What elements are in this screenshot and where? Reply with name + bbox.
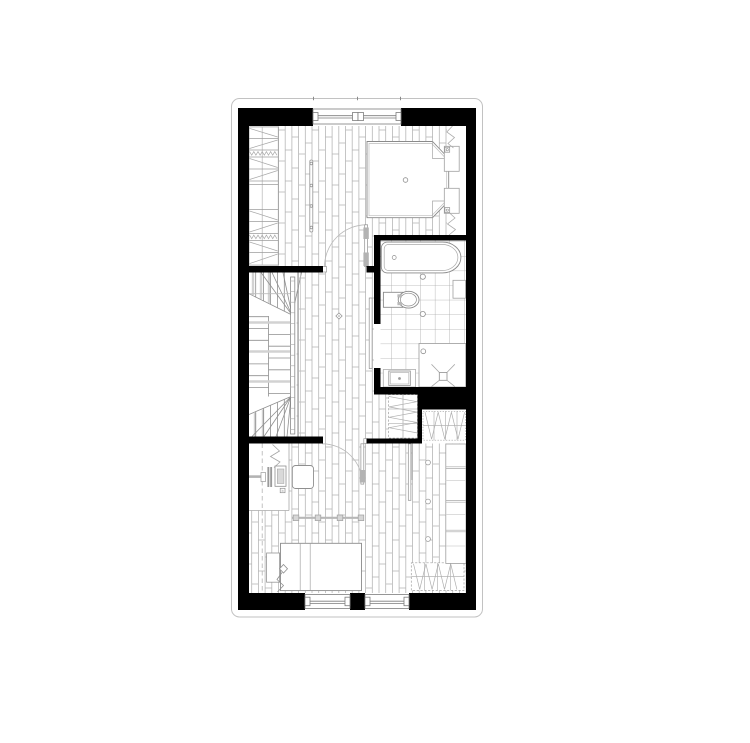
svg-text:b: b [282,489,284,493]
